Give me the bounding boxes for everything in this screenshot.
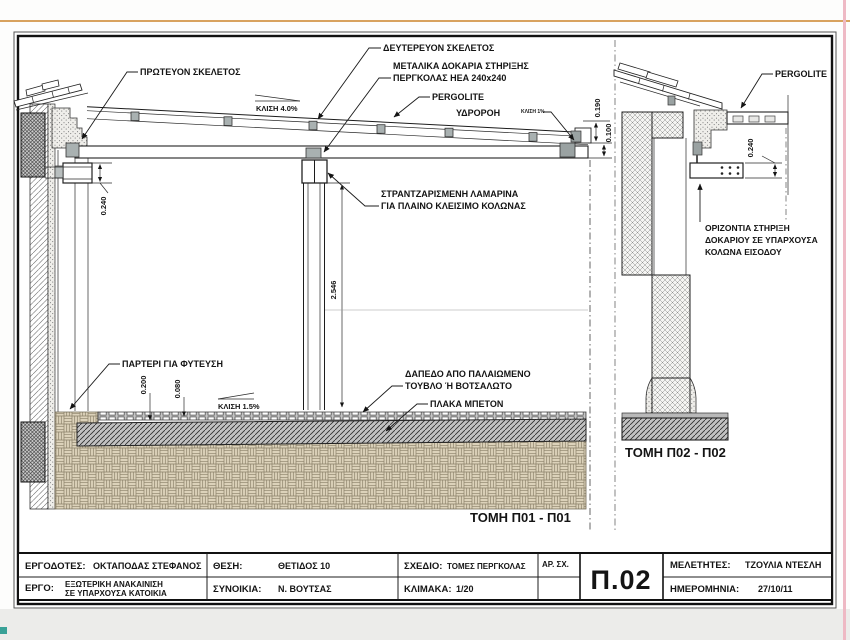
metal-beams-text-2: ΠΕΡΓΚΟΛΑΣ HEA 240x240 (393, 73, 506, 83)
scan-right-line (843, 0, 846, 640)
column-shaft (652, 275, 690, 378)
imerominia-label: ΗΜΕΡΟΜΗΝΙΑ: (670, 584, 739, 595)
dim-tile-bed: 0.080 (173, 380, 182, 399)
thesi-value: ΘΕΤΙΔΟΣ 10 (278, 561, 330, 571)
floor-text-1: ΔΑΠΕΔΟ ΑΠΟ ΠΑΛΑΙΩΜΕΝΟ (405, 369, 531, 379)
beam-seat-column (306, 148, 321, 158)
ergodotes-label: ΕΡΓΟΔΟΤΕΣ: (25, 561, 85, 572)
meletites-value: ΤΖΟΥΛΙΑ ΝΤΕΣΛΗ (745, 560, 821, 570)
below-sheet-shadow (0, 609, 850, 640)
ergo-value-1: ΕΞΩΤΕΡΙΚΗ ΑΝΑΚΑΙΝΙΣΗ (65, 580, 163, 589)
support-text-1: ΟΡΙΖΟΝΤΙΑ ΣΤΗΡΙΞΗ (705, 223, 790, 233)
wall-beam-section-top (21, 113, 45, 177)
base-slab (622, 418, 728, 440)
base-plate (622, 413, 728, 418)
thesi-label: ΘΕΣΗ: (213, 561, 242, 572)
concrete-slab-text: ΠΛΑΚΑ ΜΠΕΤΟΝ (430, 399, 503, 409)
section1-caption: ΤΟΜΗ Π01 - Π01 (470, 510, 571, 525)
sxedio-label: ΣΧΕΔΙΟ: (404, 561, 442, 572)
pergolite-text: PERGOLITE (432, 92, 484, 102)
roof-slope-label: ΚΛΙΣΗ 4.0% (256, 104, 298, 113)
meletites-label: ΜΕΛΕΤΗΤΕΣ: (670, 560, 731, 571)
ar-sx-label: ΑΡ. ΣΧ. (542, 560, 569, 569)
floor-text-2: ΤΟΥΒΛΟ Ή ΒΟΤΣΑΛΩΤΟ (405, 381, 512, 391)
lintel (652, 112, 683, 138)
pergolite-right-text: PERGOLITE (775, 69, 827, 79)
scan-corner-mark (0, 627, 7, 634)
dim-beam-height-left: 0.240 (99, 197, 108, 216)
secondary-frame-text: ΔΕΥΤΕΡΕΥΟΝ ΣΚΕΛΕΤΟΣ (383, 43, 495, 53)
primary-frame-text: ΠΡΩΤΕΥΟΝ ΣΚΕΛΕΤΟΣ (140, 67, 241, 77)
brick-floor-course (98, 412, 586, 420)
eave-block (668, 96, 675, 105)
scan-top-line (0, 20, 850, 22)
planter-text: ΠΑΡΤΕΡΙ ΓΙΑ ΦΥΤΕΥΣΗ (122, 359, 223, 369)
scanned-drawing-sheet: 0.240 2.546 0.200 (0, 0, 850, 640)
synoikia-value: Ν. ΒΟΥΤΣΑΣ (278, 584, 332, 594)
dim-beam-height-right-text: 0.240 (746, 139, 755, 158)
section2-caption: ΤΟΜΗ Π02 - Π02 (625, 445, 726, 460)
metal-beams-text-1: ΜΕΤΑΛΙΚΑ ΔΟΚΑΡΙΑ ΣΤΗΡΙΞΗΣ (393, 61, 529, 71)
drawing-number: Π.02 (590, 565, 651, 595)
hanger-block (693, 142, 702, 155)
gutter-slope-text: ΚΛΙΣΗ 1% (521, 109, 545, 115)
sheet-metal-text-2: ΓΙΑ ΠΛΑΙΝΟ ΚΛΕΙΣΙΜΟ ΚΟΛΩΝΑΣ (381, 201, 526, 211)
support-text-2: ΔΟΚΑΡΙΟΥ ΣΕ ΥΠΑΡΧΟΥΣΑ (705, 235, 818, 245)
ergo-label: ΕΡΓΟ: (25, 583, 54, 594)
klimaka-value: 1/20 (456, 584, 474, 594)
dim-floor-build: 0.200 (139, 376, 148, 395)
gutter-profile (571, 131, 581, 142)
wall-beam-section-bottom (21, 422, 45, 482)
sheet-metal-text-1: ΣΤΡΑΝΤΖΑΡΙΣΜΕΝΗ ΛΑΜΑΡΙΝΑ (381, 189, 519, 199)
ergo-value-2: ΣΕ ΥΠΑΡΧΟΥΣΑ ΚΑΤΟΙΚΙΑ (65, 589, 167, 598)
dim-clear-height-text: 2.546 (329, 281, 338, 300)
imerominia-value: 27/10/11 (758, 584, 793, 594)
beam-seat-wall (66, 143, 79, 157)
floor (55, 412, 586, 509)
sxedio-value: ΤΟΜΕΣ ΠΕΡΓΚΟΛΑΣ (447, 562, 526, 571)
ergodotes-value: ΟΚΤΑΠΟΔΑΣ ΣΤΕΦΑΝΟΣ (93, 561, 202, 571)
support-text-3: ΚΟΛΩΝΑ ΕΙΣΟΔΟΥ (705, 247, 782, 257)
gutter-text: ΥΔΡΟΡΟΗ (456, 108, 500, 118)
dim-beam-edge: 0.100 (604, 124, 613, 143)
gutter-block (560, 143, 575, 157)
concrete-slab (77, 419, 586, 446)
klimaka-label: ΚΛΙΜΑΚΑ: (404, 584, 452, 595)
synoikia-label: ΣΥΝΟΙΚΙΑ: (213, 584, 261, 595)
floor-slope-label: ΚΛΙΣΗ 1.5% (218, 402, 260, 411)
dim-gutter-height: 0.190 (593, 99, 602, 118)
title-block: ΕΡΓΟΔΟΤΕΣ: ΟΚΤΑΠΟΔΑΣ ΣΤΕΦΑΝΟΣ ΕΡΓΟ: ΕΞΩΤ… (18, 553, 832, 600)
